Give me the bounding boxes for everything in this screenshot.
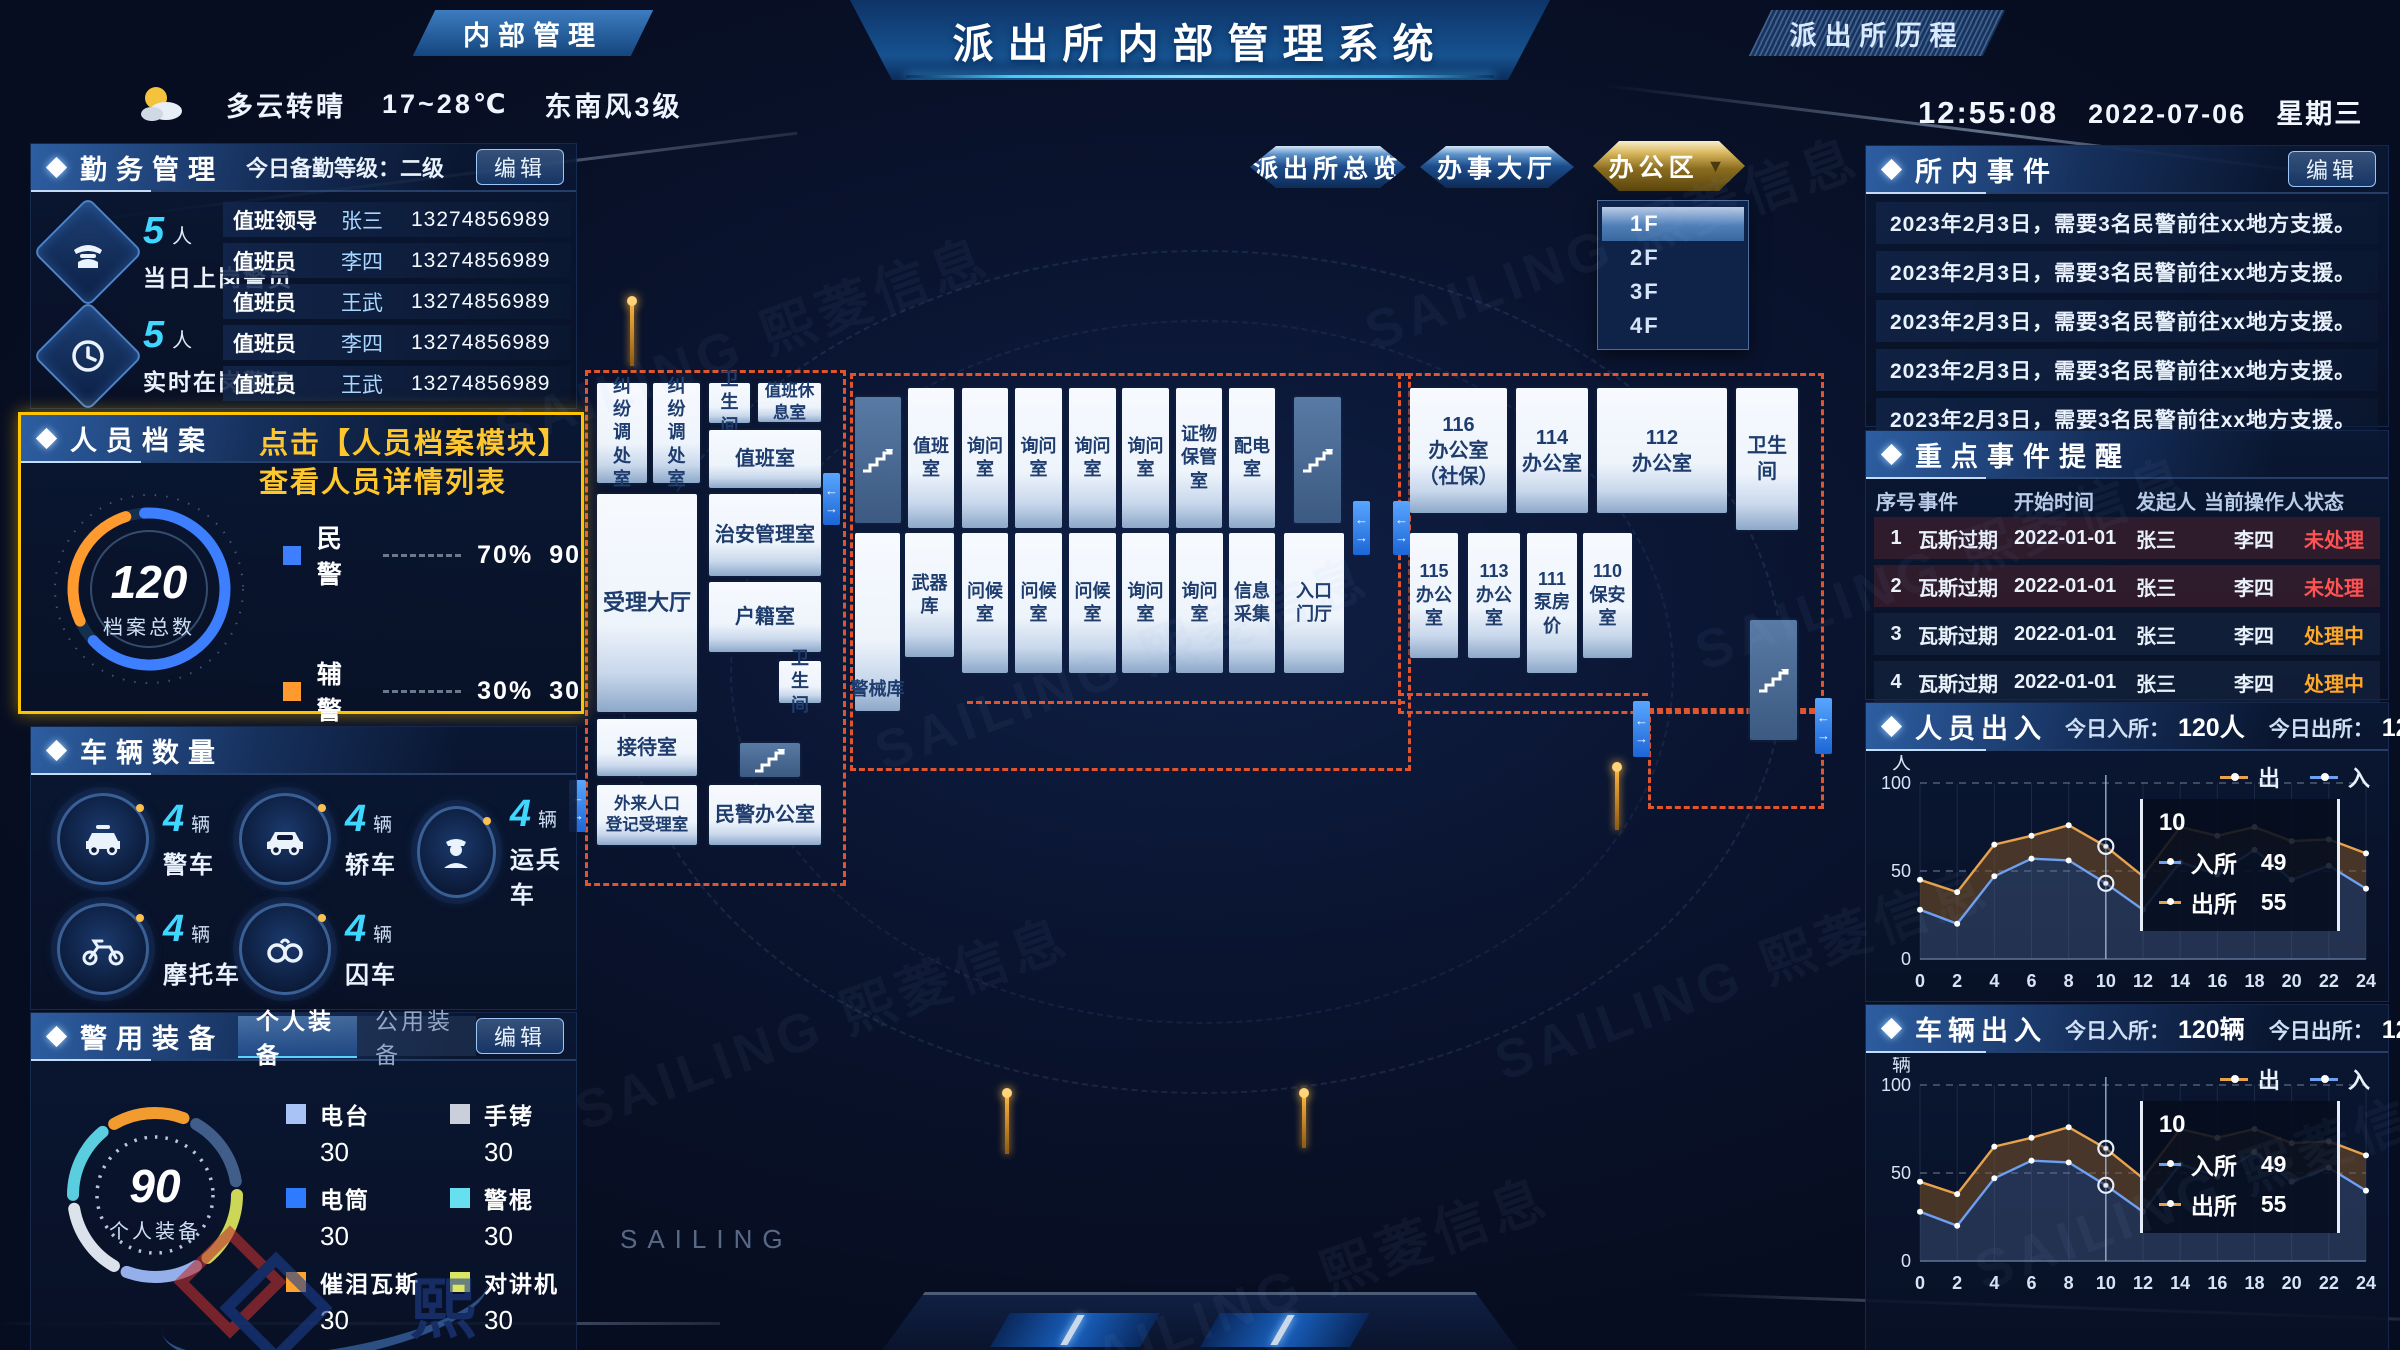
cell-operator: 李四 bbox=[2204, 572, 2304, 601]
svg-text:18: 18 bbox=[2244, 971, 2264, 991]
vehicle-item: 4辆运兵车 bbox=[417, 793, 576, 910]
lamp-post bbox=[1615, 768, 1619, 830]
roster-row: 值班员王武13274856989 bbox=[223, 284, 571, 319]
legend-name: 出 bbox=[2258, 761, 2280, 793]
status-badge: 未处理 bbox=[2304, 572, 2378, 601]
archive-legend-row: 民警70%90 bbox=[283, 519, 581, 591]
room-治安管理室[interactable]: 治安管理室 bbox=[709, 494, 821, 576]
legend-name: 出 bbox=[2258, 1063, 2280, 1095]
tooltip-label: 出所 bbox=[2191, 1187, 2237, 1221]
equipment-tab-个人装备[interactable]: 个人装备 bbox=[238, 1016, 357, 1056]
event-row: 2023年2月3日，需要3名民警前往xx地方支援。 bbox=[1876, 349, 2378, 391]
svg-text:4: 4 bbox=[1989, 971, 1999, 991]
room-警械库[interactable]: 警械库 bbox=[855, 533, 900, 711]
equipment-count: 30 bbox=[320, 1137, 436, 1168]
tooltip-row: 出所55 bbox=[2159, 1187, 2337, 1221]
equipment-tabs: 个人装备公用装备 bbox=[238, 1016, 476, 1056]
floor-plan: 纠纷调处室纠纷调处室卫生间值班休息室值班室受理大厅治安管理室户籍室卫生间接待室外… bbox=[575, 365, 1835, 1030]
roster-phone: 13274856989 bbox=[411, 249, 550, 273]
chart-legend: 出入 bbox=[2220, 761, 2370, 793]
svg-text:2: 2 bbox=[1952, 1273, 1962, 1293]
room-问候室[interactable]: 问候室 bbox=[1069, 533, 1116, 673]
status-badge: 处理中 bbox=[2304, 668, 2378, 697]
column-header: 事件 bbox=[1918, 486, 2014, 515]
key-event-row: 1瓦斯过期2022-01-01张三李四未处理 bbox=[1874, 517, 2380, 559]
event-row: 2023年2月3日，需要3名民警前往xx地方支援。 bbox=[1876, 300, 2378, 342]
roster-name: 李四 bbox=[341, 246, 411, 276]
cell-event: 瓦斯过期 bbox=[1918, 572, 2014, 601]
room-114办公室[interactable]: 114 办公室 bbox=[1516, 388, 1588, 513]
svg-text:14: 14 bbox=[2170, 1273, 2190, 1293]
vehicle-flow-totals: 今日入所：120辆 今日出所：120辆 bbox=[2065, 1010, 2400, 1046]
button-station-overview[interactable]: 派出所总览 bbox=[1250, 146, 1406, 188]
room-值班休息室[interactable]: 值班休息室 bbox=[758, 383, 821, 422]
brand-logo-en: SAILING bbox=[620, 1224, 793, 1255]
room-询问室[interactable]: 询问室 bbox=[1122, 388, 1169, 528]
equipment-swatch bbox=[286, 1104, 306, 1124]
room-受理大厅[interactable]: 受理大厅 bbox=[597, 494, 697, 712]
legend-label: 辅警 bbox=[317, 655, 367, 727]
svg-text:6: 6 bbox=[2026, 971, 2036, 991]
equipment-tab-公用装备[interactable]: 公用装备 bbox=[357, 1016, 476, 1056]
duty-panel: 勤务管理 今日备勤等级：二级 编辑 5人当日上岗警员5人实时在岗警员 值班领导张… bbox=[30, 143, 577, 409]
tooltip-row: 入所49 bbox=[2159, 845, 2337, 879]
vehicle-text: 4辆轿车 bbox=[345, 798, 397, 880]
vehicle-text: 4辆囚车 bbox=[345, 908, 397, 990]
room-值班室[interactable]: 值班室 bbox=[908, 388, 954, 528]
roster-role: 值班员 bbox=[233, 369, 341, 399]
tooltip-row: 入所49 bbox=[2159, 1147, 2337, 1181]
cell-start: 2022-01-01 bbox=[2014, 671, 2136, 694]
cell-event: 瓦斯过期 bbox=[1918, 668, 2014, 697]
floor-option-4F[interactable]: 4F bbox=[1602, 309, 1744, 343]
room-询问室[interactable]: 询问室 bbox=[1069, 388, 1116, 528]
equipment-count: 30 bbox=[320, 1305, 436, 1336]
legend-item-出: 出 bbox=[2220, 761, 2280, 793]
svg-text:0: 0 bbox=[1901, 1251, 1911, 1271]
event-row: 2023年2月3日，需要3名民警前往xx地方支援。 bbox=[1876, 202, 2378, 244]
vehicle-panel-header: 车辆数量 bbox=[31, 727, 576, 773]
vehicle-text: 4辆警车 bbox=[163, 798, 215, 880]
stairs-icon bbox=[1750, 620, 1797, 740]
personnel-panel-title: 人员档案 bbox=[70, 419, 214, 458]
roster-phone: 13274856989 bbox=[411, 208, 550, 232]
chart-tooltip: 10入所49出所55 bbox=[2140, 1101, 2340, 1233]
weather-wind: 东南风3级 bbox=[545, 85, 683, 124]
chart-tooltip: 10入所49出所55 bbox=[2140, 799, 2340, 931]
person-flow-totals: 今日入所：120人 今日出所：120人 bbox=[2065, 708, 2400, 744]
police-car-icon bbox=[57, 793, 149, 885]
roster-phone: 13274856989 bbox=[411, 372, 550, 396]
archive-gauge-text: 120 档案总数 bbox=[49, 555, 249, 640]
column-header: 当前操作人 bbox=[2204, 486, 2304, 515]
equipment-label: 电台 bbox=[320, 1097, 370, 1131]
officer-icon bbox=[417, 806, 496, 898]
archive-legend-row: 辅警30%30 bbox=[283, 655, 581, 727]
legend-count: 30 bbox=[549, 677, 581, 706]
clock-weekday: 星期三 bbox=[2276, 92, 2363, 131]
svg-text:6: 6 bbox=[2026, 1273, 2036, 1293]
tooltip-row: 出所55 bbox=[2159, 885, 2337, 919]
diamond-bullet-icon bbox=[1881, 715, 1902, 736]
svg-text:20: 20 bbox=[2282, 971, 2302, 991]
cell-initiator: 张三 bbox=[2136, 572, 2204, 601]
legend-marker bbox=[2310, 1078, 2338, 1081]
room-配电室[interactable]: 配电室 bbox=[1229, 388, 1275, 528]
svg-text:12: 12 bbox=[2133, 971, 2153, 991]
vehicle-label: 囚车 bbox=[345, 955, 397, 990]
archive-legend: 民警70%90辅警30%30 bbox=[283, 519, 581, 727]
stairs-icon bbox=[855, 397, 901, 523]
equipment-count: 30 bbox=[484, 1305, 600, 1336]
vehicle-count: 4辆 bbox=[163, 798, 215, 841]
cell-operator: 李四 bbox=[2204, 524, 2304, 553]
vehicle-count: 4辆 bbox=[163, 908, 241, 951]
svg-text:12: 12 bbox=[2133, 1273, 2153, 1293]
duty-panel-title: 勤务管理 bbox=[80, 148, 224, 187]
floor-dropdown: 1F2F3F4F bbox=[1597, 200, 1749, 350]
building-inner-line bbox=[967, 701, 1405, 704]
vehicle-text: 4辆摩托车 bbox=[163, 908, 241, 990]
page-title: 派出所内部管理系统 bbox=[953, 10, 1448, 70]
svg-text:22: 22 bbox=[2319, 1273, 2339, 1293]
chart-legend: 出入 bbox=[2220, 1063, 2370, 1095]
equipment-panel: 警用装备 个人装备公用装备 编辑 90 个人装备 电台30手铐30电筒30警棍3… bbox=[30, 1012, 577, 1350]
equipment-swatch bbox=[450, 1188, 470, 1208]
room-卫生间[interactable]: 卫生间 bbox=[1736, 388, 1798, 530]
equipment-swatch bbox=[450, 1272, 470, 1292]
equipment-count: 30 bbox=[484, 1221, 600, 1252]
equipment-count: 30 bbox=[320, 1221, 436, 1252]
duty-level-label: 今日备勤等级：二级 bbox=[246, 151, 444, 183]
equipment-panel-header: 警用装备 个人装备公用装备 编辑 bbox=[31, 1013, 576, 1059]
svg-text:14: 14 bbox=[2170, 971, 2190, 991]
legend-item-入: 入 bbox=[2310, 761, 2370, 793]
clock-time: 12:55:08 bbox=[1918, 95, 2058, 131]
cell-initiator: 张三 bbox=[2136, 524, 2204, 553]
legend-dash bbox=[383, 690, 461, 693]
room-询问室[interactable]: 询问室 bbox=[962, 388, 1008, 528]
legend-swatch bbox=[283, 546, 301, 565]
stairs-icon bbox=[1294, 397, 1341, 523]
tooltip-value: 49 bbox=[2261, 1151, 2287, 1178]
equipment-item-top: 警棍 bbox=[450, 1181, 600, 1215]
tooltip-marker bbox=[2159, 1203, 2181, 1206]
equipment-panel-title: 警用装备 bbox=[80, 1017, 224, 1056]
roster-row: 值班员王武13274856989 bbox=[223, 366, 571, 401]
page-title-banner: 派出所内部管理系统 bbox=[850, 0, 1550, 80]
roster-role: 值班员 bbox=[233, 287, 341, 317]
clock-icon bbox=[33, 300, 143, 410]
building-outline bbox=[1648, 708, 1824, 809]
room-卫生间[interactable]: 卫生间 bbox=[779, 661, 821, 703]
svg-text:50: 50 bbox=[1891, 1163, 1911, 1183]
room-证物保管室[interactable]: 证物保管室 bbox=[1176, 388, 1222, 528]
room-民警办公室[interactable]: 民警办公室 bbox=[709, 785, 821, 845]
tooltip-marker bbox=[2159, 901, 2181, 904]
lamp-post bbox=[1302, 1094, 1306, 1148]
vehicle-count: 4辆 bbox=[510, 793, 576, 836]
legend-marker bbox=[2220, 776, 2248, 779]
tooltip-title: 10 bbox=[2159, 1111, 2337, 1139]
diamond-bullet-icon bbox=[1881, 443, 1902, 464]
vehicle-flow-title: 车辆出入 bbox=[1915, 1009, 2047, 1048]
svg-text:0: 0 bbox=[1901, 949, 1911, 969]
key-events-panel: 重点事件提醒 序号事件开始时间发起人当前操作人状态1瓦斯过期2022-01-01… bbox=[1865, 430, 2389, 700]
vehicle-label: 运兵车 bbox=[510, 840, 576, 910]
vehicle-count: 4辆 bbox=[345, 908, 397, 951]
column-header: 序号 bbox=[1874, 486, 1918, 515]
vehicle-label: 警车 bbox=[163, 845, 215, 880]
personnel-archive-panel[interactable]: 人员档案 点击【人员档案模块】查看人员详情列表 120 档案总数 民警70%90… bbox=[18, 412, 584, 714]
cell-initiator: 张三 bbox=[2136, 620, 2204, 649]
cell-event: 瓦斯过期 bbox=[1918, 620, 2014, 649]
key-events-columns: 序号事件开始时间发起人当前操作人状态 bbox=[1874, 483, 2380, 517]
person-flow-header: 人员出入 今日入所：120人 今日出所：120人 bbox=[1866, 703, 2388, 749]
equipment-item: 电筒30 bbox=[286, 1181, 436, 1265]
lamp-post bbox=[1005, 1094, 1009, 1154]
motorcycle-icon bbox=[57, 903, 149, 995]
tooltip-value: 49 bbox=[2261, 849, 2287, 876]
room-接待室[interactable]: 接待室 bbox=[597, 719, 697, 776]
equipment-item: 对讲机30 bbox=[450, 1265, 600, 1349]
roster-name: 王武 bbox=[341, 369, 411, 399]
room-113办公室[interactable]: 113 办公 室 bbox=[1468, 533, 1520, 658]
column-header: 状态 bbox=[2304, 486, 2378, 515]
equipment-item-top: 手铐 bbox=[450, 1097, 600, 1131]
room-询问室[interactable]: 询问室 bbox=[1015, 388, 1062, 528]
button-service-hall[interactable]: 办事大厅 bbox=[1420, 146, 1574, 188]
cell-no: 2 bbox=[1874, 575, 1918, 598]
legend-swatch bbox=[283, 682, 301, 701]
cell-event: 瓦斯过期 bbox=[1918, 524, 2014, 553]
room-纠纷调处室[interactable]: 纠纷调处室 bbox=[597, 383, 647, 483]
tooltip-label: 入所 bbox=[2191, 1147, 2237, 1181]
roster-role: 值班员 bbox=[233, 246, 341, 276]
equipment-item-top: 催泪瓦斯 bbox=[286, 1265, 436, 1299]
tab-station-history[interactable]: 派出所历程 bbox=[1760, 10, 1994, 56]
room-户籍室[interactable]: 户籍室 bbox=[709, 582, 821, 652]
vehicle-panel-title: 车辆数量 bbox=[80, 731, 224, 770]
room-111泵房价[interactable]: 111 泵房 价 bbox=[1527, 533, 1577, 673]
roster-row: 值班员李四13274856989 bbox=[223, 325, 571, 360]
diamond-bullet-icon bbox=[46, 1025, 67, 1046]
diamond-bullet-icon bbox=[1881, 158, 1902, 179]
event-row: 2023年2月3日，需要3名民警前往xx地方支援。 bbox=[1876, 251, 2378, 293]
svg-text:0: 0 bbox=[1915, 971, 1925, 991]
cell-initiator: 张三 bbox=[2136, 668, 2204, 697]
tooltip-value: 55 bbox=[2261, 889, 2287, 916]
svg-text:10: 10 bbox=[2096, 971, 2116, 991]
key-event-row: 2瓦斯过期2022-01-01张三李四未处理 bbox=[1874, 565, 2380, 607]
floor-option-3F[interactable]: 3F bbox=[1602, 275, 1744, 309]
events-panel-header: 所内事件 编辑 bbox=[1866, 146, 2388, 192]
station-events-panel: 所内事件 编辑 2023年2月3日，需要3名民警前往xx地方支援。2023年2月… bbox=[1865, 145, 2389, 427]
diamond-bullet-icon bbox=[1881, 1017, 1902, 1038]
equipment-swatch bbox=[286, 1188, 306, 1208]
cell-no: 4 bbox=[1874, 671, 1918, 694]
roster-row: 值班员李四13274856989 bbox=[223, 243, 571, 278]
weather-bar: 多云转晴 17~28℃ 东南风3级 bbox=[138, 84, 683, 124]
room-值班室[interactable]: 值班室 bbox=[709, 430, 821, 488]
room-问候室[interactable]: 问候室 bbox=[1015, 533, 1062, 673]
equipment-count: 30 bbox=[484, 1137, 600, 1168]
vehicle-item: 4辆摩托车 bbox=[57, 903, 241, 995]
button-office-area[interactable]: 办公区 ▼ bbox=[1593, 141, 1745, 191]
roster-name: 王武 bbox=[341, 287, 411, 317]
legend-percent: 70% bbox=[477, 541, 533, 570]
svg-text:10: 10 bbox=[2096, 1273, 2116, 1293]
equipment-edit-button[interactable]: 编辑 bbox=[476, 1018, 564, 1054]
equipment-item: 催泪瓦斯30 bbox=[286, 1265, 436, 1349]
key-event-row: 4瓦斯过期2022-01-01张三李四处理中 bbox=[1874, 661, 2380, 703]
roster-role: 值班员 bbox=[233, 328, 341, 358]
door-marker: ←→ bbox=[1633, 701, 1650, 757]
equipment-item: 电台30 bbox=[286, 1097, 436, 1181]
equipment-item: 警棍30 bbox=[450, 1181, 600, 1265]
column-header: 开始时间 bbox=[2014, 486, 2136, 515]
tab-internal-management[interactable]: 内部管理 bbox=[424, 10, 642, 56]
svg-text:16: 16 bbox=[2207, 971, 2227, 991]
svg-text:8: 8 bbox=[2064, 1273, 2074, 1293]
floor-option-2F[interactable]: 2F bbox=[1602, 241, 1744, 275]
room-110保安室[interactable]: 110 保安 室 bbox=[1583, 533, 1632, 658]
legend-dash bbox=[383, 554, 461, 557]
floor-option-1F[interactable]: 1F bbox=[1602, 207, 1744, 241]
cell-start: 2022-01-01 bbox=[2014, 623, 2136, 646]
key-events-header: 重点事件提醒 bbox=[1866, 431, 2388, 477]
duty-roster: 值班领导张三13274856989值班员李四13274856989值班员王武13… bbox=[223, 202, 571, 401]
diamond-bullet-icon bbox=[46, 156, 67, 177]
roster-name: 张三 bbox=[341, 205, 411, 235]
door-marker: ←→ bbox=[1353, 501, 1370, 555]
equipment-label: 警棍 bbox=[484, 1181, 534, 1215]
door-marker: ←→ bbox=[823, 473, 840, 525]
events-edit-button[interactable]: 编辑 bbox=[2288, 151, 2376, 187]
key-events-title: 重点事件提醒 bbox=[1915, 435, 2131, 474]
vehicle-count-panel: 车辆数量 4辆警车4辆轿车4辆运兵车4辆摩托车4辆囚车 bbox=[30, 726, 577, 1010]
equipment-swatch bbox=[450, 1104, 470, 1124]
equipment-label: 对讲机 bbox=[484, 1265, 559, 1299]
dashboard-root: SAILING 熙菱信息SAILING 熙菱信息SAILING 熙菱信息SAIL… bbox=[0, 0, 2400, 1350]
tooltip-label: 入所 bbox=[2191, 845, 2237, 879]
column-header: 发起人 bbox=[2136, 486, 2204, 515]
status-badge: 处理中 bbox=[2304, 620, 2378, 649]
svg-text:20: 20 bbox=[2282, 1273, 2302, 1293]
events-list: 2023年2月3日，需要3名民警前往xx地方支援。2023年2月3日，需要3名民… bbox=[1876, 202, 2378, 440]
legend-label: 民警 bbox=[317, 519, 367, 591]
tooltip-value: 55 bbox=[2261, 1191, 2287, 1218]
equipment-list: 电台30手铐30电筒30警棍30催泪瓦斯30对讲机30 bbox=[286, 1097, 600, 1349]
svg-text:16: 16 bbox=[2207, 1273, 2227, 1293]
roster-phone: 13274856989 bbox=[411, 331, 550, 355]
lamp-post bbox=[630, 302, 634, 366]
equipment-label: 手铐 bbox=[484, 1097, 534, 1131]
building-inner-line bbox=[1398, 693, 1648, 696]
vehicle-item: 4辆轿车 bbox=[239, 793, 397, 885]
room-112办公室[interactable]: 112 办公室 bbox=[1597, 388, 1727, 513]
svg-text:4: 4 bbox=[1989, 1273, 1999, 1293]
tooltip-label: 出所 bbox=[2191, 885, 2237, 919]
svg-text:24: 24 bbox=[2356, 971, 2376, 991]
room-武器库[interactable]: 武器库 bbox=[905, 533, 954, 657]
svg-text:50: 50 bbox=[1891, 861, 1911, 881]
equipment-swatch bbox=[286, 1272, 306, 1292]
legend-name: 入 bbox=[2348, 761, 2370, 793]
cell-no: 1 bbox=[1874, 527, 1918, 550]
legend-item-出: 出 bbox=[2220, 1063, 2280, 1095]
door-marker: ←→ bbox=[1815, 698, 1832, 754]
chevron-down-icon: ▼ bbox=[1707, 156, 1730, 177]
weather-icon bbox=[138, 84, 190, 124]
cell-no: 3 bbox=[1874, 623, 1918, 646]
door-marker: ←→ bbox=[1393, 501, 1410, 555]
car-icon bbox=[239, 793, 331, 885]
svg-text:辆: 辆 bbox=[1892, 1057, 1911, 1076]
room-入口门厅[interactable]: 入口门厅 bbox=[1284, 533, 1344, 673]
legend-name: 入 bbox=[2348, 1063, 2370, 1095]
legend-marker bbox=[2220, 1078, 2248, 1081]
handcuffs-icon bbox=[239, 903, 331, 995]
room-纠纷调处室[interactable]: 纠纷调处室 bbox=[653, 383, 700, 483]
cell-operator: 李四 bbox=[2204, 620, 2304, 649]
tooltip-marker bbox=[2159, 1163, 2181, 1166]
diamond-bullet-icon bbox=[36, 427, 57, 448]
vehicle-count: 4辆 bbox=[345, 798, 397, 841]
room-115办公室[interactable]: 115 办公 室 bbox=[1410, 533, 1458, 658]
room-卫生间[interactable]: 卫生间 bbox=[709, 383, 750, 423]
room-问候室[interactable]: 问候室 bbox=[962, 533, 1008, 673]
room-116办公室（社保）[interactable]: 116 办公室 （社保） bbox=[1410, 388, 1507, 513]
equipment-item-top: 对讲机 bbox=[450, 1265, 600, 1299]
legend-item-入: 入 bbox=[2310, 1063, 2370, 1095]
weather-condition: 多云转晴 bbox=[226, 85, 346, 124]
events-panel-title: 所内事件 bbox=[1915, 150, 2059, 189]
tooltip-marker bbox=[2159, 861, 2181, 864]
room-询问室[interactable]: 询问室 bbox=[1176, 533, 1223, 673]
legend-count: 90 bbox=[549, 541, 581, 570]
clock-date: 2022-07-06 bbox=[2088, 99, 2246, 130]
vehicle-text: 4辆运兵车 bbox=[510, 793, 576, 910]
vehicle-label: 摩托车 bbox=[163, 955, 241, 990]
equipment-item-top: 电筒 bbox=[286, 1181, 436, 1215]
svg-text:100: 100 bbox=[1881, 1075, 1911, 1095]
status-badge: 未处理 bbox=[2304, 524, 2378, 553]
equipment-gauge-text: 90 个人装备 bbox=[49, 1159, 261, 1244]
svg-text:22: 22 bbox=[2319, 971, 2339, 991]
svg-text:8: 8 bbox=[2064, 971, 2074, 991]
room-外来人口登记受理室[interactable]: 外来人口 登记受理室 bbox=[597, 785, 697, 845]
cell-start: 2022-01-01 bbox=[2014, 575, 2136, 598]
svg-text:人: 人 bbox=[1892, 755, 1911, 774]
bottom-decor bbox=[880, 1292, 1520, 1350]
svg-text:2: 2 bbox=[1952, 971, 1962, 991]
stairs-icon bbox=[740, 743, 800, 777]
diamond-bullet-icon bbox=[46, 739, 67, 760]
vehicle-flow-header: 车辆出入 今日入所：120辆 今日出所：120辆 bbox=[1866, 1005, 2388, 1051]
duty-edit-button[interactable]: 编辑 bbox=[476, 149, 564, 185]
vehicle-item: 4辆警车 bbox=[57, 793, 215, 885]
room-信息采集[interactable]: 信息采集 bbox=[1229, 533, 1275, 673]
roster-row: 值班领导张三13274856989 bbox=[223, 202, 571, 237]
svg-text:100: 100 bbox=[1881, 773, 1911, 793]
key-event-row: 3瓦斯过期2022-01-01张三李四处理中 bbox=[1874, 613, 2380, 655]
tooltip-title: 10 bbox=[2159, 809, 2337, 837]
cell-start: 2022-01-01 bbox=[2014, 527, 2136, 550]
room-询问室[interactable]: 询问室 bbox=[1122, 533, 1169, 673]
person-flow-panel: 人员出入 今日入所：120人 今日出所：120人 出入0246810121416… bbox=[1865, 702, 2389, 1002]
duty-panel-header: 勤务管理 今日备勤等级：二级 编辑 bbox=[31, 144, 576, 190]
